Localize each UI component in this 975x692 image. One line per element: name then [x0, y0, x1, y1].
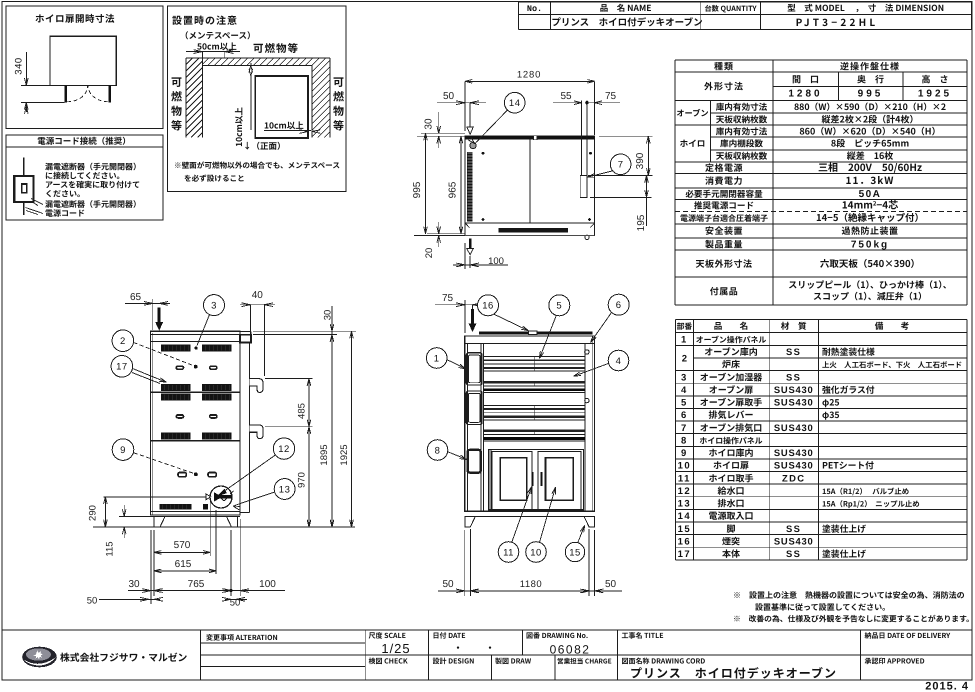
svg-text:13: 13: [678, 499, 692, 510]
svg-text:1280: 1280: [517, 70, 541, 81]
svg-text:1180: 1180: [520, 579, 542, 590]
svg-text:強化ガラス付: 強化ガラス付: [822, 383, 875, 396]
svg-text:排気レバー: 排気レバー: [708, 408, 753, 421]
svg-text:340: 340: [14, 57, 25, 74]
svg-text:1/25: 1/25: [381, 641, 410, 656]
svg-text:7: 7: [681, 423, 688, 434]
svg-text:50: 50: [605, 579, 617, 590]
svg-text:55: 55: [560, 91, 572, 102]
svg-text:庫内有効寸法: 庫内有効寸法: [716, 125, 768, 137]
svg-text:75: 75: [442, 293, 454, 304]
svg-text:15A（Rp1/2） ニップル止め: 15A（Rp1/2） ニップル止め: [822, 499, 920, 510]
svg-text:6: 6: [616, 300, 622, 311]
svg-text:15A（R1/2） バルブ止め: 15A（R1/2） バルブ止め: [822, 486, 909, 497]
svg-text:115: 115: [105, 541, 116, 556]
svg-text:1925: 1925: [918, 89, 952, 100]
svg-text:可燃物等: 可燃物等: [253, 41, 299, 56]
svg-text:1895: 1895: [319, 444, 330, 465]
svg-text:ホイロ庫内: ホイロ庫内: [708, 446, 753, 459]
svg-text:50: 50: [443, 91, 455, 102]
svg-text:65: 65: [130, 292, 142, 303]
svg-text:設置時の注意: 設置時の注意: [172, 12, 238, 27]
svg-text:オーブン加湿器: オーブン加湿器: [700, 370, 762, 383]
svg-text:電源コード接続（推奨）: 電源コード接続（推奨）: [37, 135, 131, 147]
svg-text:50cm以上: 50cm以上: [197, 41, 237, 53]
svg-text:SUS430: SUS430: [774, 422, 814, 433]
svg-text:1: 1: [681, 335, 688, 346]
svg-text:材 質: 材 質: [781, 320, 807, 332]
svg-text:SS: SS: [786, 371, 801, 382]
svg-text:10: 10: [530, 547, 542, 558]
svg-text:ホイロ扉開時寸法: ホイロ扉開時寸法: [35, 11, 115, 25]
svg-text:庫内有効寸法: 庫内有効寸法: [716, 101, 768, 113]
svg-text:100: 100: [488, 256, 504, 267]
svg-text:等: 等: [333, 118, 344, 134]
svg-text:1925: 1925: [339, 444, 350, 465]
svg-text:承認印 APPROVED: 承認印 APPROVED: [865, 657, 925, 667]
svg-text:750kg: 750kg: [851, 239, 889, 250]
svg-text:5: 5: [556, 301, 562, 312]
svg-text:1: 1: [434, 353, 440, 364]
svg-text:プリンス ホイロ付デッキオーブン: プリンス ホイロ付デッキオーブン: [551, 15, 702, 29]
svg-text:9: 9: [120, 445, 126, 456]
svg-text:・: ・: [453, 641, 462, 654]
svg-text:11．3kW: 11．3kW: [846, 172, 895, 187]
svg-text:3: 3: [211, 301, 217, 312]
svg-text:必要手元開閉器容量: 必要手元開閉器容量: [685, 188, 763, 200]
svg-text:変更事項 ALTERATION: 変更事項 ALTERATION: [206, 633, 278, 643]
svg-text:給水口: 給水口: [717, 484, 744, 497]
svg-text:※ 設置上の注意 熱機器の設置については安全の為、消防法の: ※ 設置上の注意 熱機器の設置については安全の為、消防法の: [733, 590, 965, 601]
svg-text:天板収納枚数: 天板収納枚数: [716, 113, 768, 125]
svg-text:11: 11: [678, 473, 691, 484]
svg-text:検図 CHECK: 検図 CHECK: [369, 657, 408, 667]
svg-text:日付 DATE: 日付 DATE: [433, 631, 466, 641]
svg-text:1280: 1280: [788, 89, 822, 100]
svg-text:ホイロ操作パネル: ホイロ操作パネル: [699, 435, 762, 446]
svg-text:工事名 TITLE: 工事名 TITLE: [622, 631, 664, 641]
svg-text:庫内棚段数: 庫内棚段数: [720, 138, 763, 150]
svg-text:を必ず設けること: を必ず設けること: [184, 173, 245, 184]
svg-text:オーブン扉: オーブン扉: [709, 383, 753, 396]
svg-text:PJT3−22HL: PJT3−22HL: [796, 14, 879, 29]
svg-text:※壁面が可燃物以外の場合でも、メンテスペース: ※壁面が可燃物以外の場合でも、メンテスペース: [174, 160, 340, 171]
svg-text:・: ・: [485, 641, 494, 654]
svg-text:995: 995: [412, 181, 423, 198]
svg-text:↓（正面）: ↓（正面）: [243, 140, 286, 152]
svg-text:設置基準に従って設置してください。: 設置基準に従って設置してください。: [755, 602, 890, 613]
svg-text:オーブン操作パネル: オーブン操作パネル: [696, 335, 767, 346]
svg-text:970: 970: [297, 472, 308, 488]
svg-text:7: 7: [618, 160, 624, 171]
svg-text:SS: SS: [786, 548, 801, 559]
svg-text:SS: SS: [786, 523, 801, 534]
svg-text:20: 20: [424, 248, 435, 259]
svg-text:天板外形寸法: 天板外形寸法: [695, 257, 752, 270]
svg-text:PETシート付: PETシート付: [822, 459, 874, 472]
svg-text:50: 50: [230, 598, 241, 609]
svg-text:390: 390: [635, 152, 646, 169]
svg-text:製品重量: 製品重量: [705, 237, 743, 250]
svg-text:SUS430: SUS430: [774, 397, 814, 408]
svg-text:SUS430: SUS430: [774, 460, 814, 471]
svg-text:SUS430: SUS430: [774, 384, 814, 395]
svg-text:615: 615: [175, 559, 192, 570]
svg-text:品 名: 品 名: [714, 320, 748, 332]
svg-text:オーブン庫内: オーブン庫内: [704, 345, 757, 358]
svg-text:ホイロ取手: ホイロ取手: [708, 471, 753, 484]
svg-text:定格電源: 定格電源: [705, 161, 743, 174]
svg-text:50: 50: [442, 579, 454, 590]
svg-text:40: 40: [252, 290, 264, 301]
svg-text:2015. 4: 2015. 4: [925, 681, 969, 692]
svg-text:9: 9: [681, 448, 688, 459]
svg-text:13: 13: [279, 484, 291, 495]
svg-text:部番: 部番: [677, 321, 693, 332]
svg-text:880（W）×590（D）×210（H）×2: 880（W）×590（D）×210（H）×2: [794, 100, 946, 113]
svg-text:外形寸法: 外形寸法: [704, 80, 744, 93]
svg-text:965: 965: [448, 181, 459, 198]
svg-text:設計 DESIGN: 設計 DESIGN: [433, 657, 475, 667]
svg-text:ZDC: ZDC: [782, 472, 805, 483]
svg-text:6: 6: [681, 410, 688, 421]
svg-text:290: 290: [88, 505, 99, 521]
svg-text:ホイロ: ホイロ: [680, 138, 706, 150]
svg-text:奥 行: 奥 行: [857, 72, 884, 85]
svg-text:株式会社フジサワ・マルゼン: 株式会社フジサワ・マルゼン: [60, 650, 188, 664]
svg-text:SUS430: SUS430: [774, 535, 814, 546]
svg-text:φ25: φ25: [822, 396, 840, 409]
svg-text:炉床: 炉床: [722, 358, 740, 371]
svg-text:ください。: ください。: [45, 189, 85, 200]
svg-text:100: 100: [259, 579, 276, 590]
svg-text:電源コード: 電源コード: [45, 208, 85, 219]
svg-text:備 考: 備 考: [875, 320, 910, 332]
svg-text:17: 17: [116, 362, 128, 373]
svg-text:間 口: 間 口: [792, 72, 819, 85]
svg-text:860（W）×620（D）×540（H）: 860（W）×620（D）×540（H）: [799, 124, 940, 137]
svg-text:16: 16: [482, 301, 494, 312]
svg-text:六取天板（540×390）: 六取天板（540×390）: [820, 256, 920, 270]
svg-text:煙突: 煙突: [722, 534, 740, 547]
svg-text:14: 14: [509, 98, 521, 109]
svg-text:種類: 種類: [714, 59, 734, 72]
svg-text:06082: 06082: [550, 643, 591, 657]
svg-text:10: 10: [678, 461, 692, 472]
svg-text:11: 11: [503, 547, 514, 558]
svg-text:消費電力: 消費電力: [705, 174, 743, 187]
svg-text:50: 50: [87, 596, 98, 607]
svg-text:製図 DRAW: 製図 DRAW: [495, 657, 532, 667]
svg-text:4: 4: [616, 356, 622, 367]
svg-text:プリンス ホイロ付デッキオーブン: プリンス ホイロ付デッキオーブン: [630, 665, 837, 682]
svg-text:SUS430: SUS430: [774, 447, 814, 458]
svg-text:995: 995: [858, 89, 884, 100]
svg-text:8: 8: [681, 435, 688, 446]
svg-text:4: 4: [681, 385, 688, 396]
svg-text:耐熱塗装仕様: 耐熱塗装仕様: [822, 345, 875, 358]
svg-text:品 名 NAME: 品 名 NAME: [600, 2, 652, 14]
svg-text:電源端子台適合圧着端子: 電源端子台適合圧着端子: [680, 213, 768, 224]
svg-text:2: 2: [682, 353, 687, 364]
svg-text:3: 3: [681, 372, 688, 383]
svg-text:30: 30: [424, 118, 435, 130]
svg-text:17: 17: [678, 549, 692, 560]
svg-text:納品日 DATE OF DELIVERY: 納品日 DATE OF DELIVERY: [865, 631, 952, 641]
svg-text:5: 5: [681, 398, 688, 409]
svg-text:脚: 脚: [726, 522, 735, 535]
svg-text:等: 等: [171, 118, 182, 134]
svg-text:ホイロ扉: ホイロ扉: [713, 459, 749, 472]
svg-text:φ35: φ35: [822, 408, 840, 421]
svg-text:2: 2: [120, 336, 126, 347]
svg-text:オーブン排気口: オーブン排気口: [700, 421, 762, 434]
svg-text:電源取入口: 電源取入口: [708, 509, 753, 522]
svg-text:付属品: 付属品: [710, 284, 739, 297]
svg-text:上火 人工石ボード、下火 人工石ボード: 上火 人工石ボード、下火 人工石ボード: [822, 360, 962, 371]
svg-text:SS: SS: [786, 346, 801, 357]
svg-text:14: 14: [678, 511, 692, 522]
svg-text:16: 16: [678, 536, 692, 547]
svg-text:15: 15: [678, 524, 692, 535]
svg-text:型 式 MODEL ， 寸 法 DIMENSION: 型 式 MODEL ， 寸 法 DIMENSION: [787, 2, 944, 14]
svg-text:75: 75: [605, 91, 617, 102]
svg-text:塗装仕上げ: 塗装仕上げ: [822, 547, 866, 560]
svg-text:図番 DRAWING No.: 図番 DRAWING No.: [526, 631, 588, 641]
svg-text:安全装置: 安全装置: [705, 224, 743, 237]
svg-text:高 さ: 高 さ: [921, 72, 948, 85]
svg-text:台数 QUANTITY: 台数 QUANTITY: [704, 4, 757, 14]
svg-text:塗装仕上げ: 塗装仕上げ: [822, 522, 866, 535]
svg-text:30: 30: [128, 579, 140, 590]
svg-text:オーブン扉取手: オーブン扉取手: [700, 396, 762, 409]
svg-text:195: 195: [636, 214, 647, 231]
svg-text:オーブン: オーブン: [676, 107, 708, 119]
svg-text:12: 12: [678, 486, 692, 497]
svg-text:485: 485: [297, 403, 308, 419]
svg-text:尺度 SCALE: 尺度 SCALE: [369, 631, 406, 641]
svg-text:推奨電源コード: 推奨電源コード: [694, 200, 754, 212]
svg-text:営業担当 CHARGE: 営業担当 CHARGE: [557, 656, 612, 666]
svg-text:8段 ピッチ65mm: 8段 ピッチ65mm: [831, 137, 910, 150]
svg-text:12: 12: [278, 444, 290, 455]
svg-text:10cm以上: 10cm以上: [264, 120, 304, 132]
svg-text:765: 765: [188, 579, 205, 590]
svg-text:14−5（絶縁キャップ付）: 14−5（絶縁キャップ付）: [816, 210, 924, 224]
svg-text:No.: No.: [527, 4, 542, 14]
svg-text:逆操作盤仕様: 逆操作盤仕様: [840, 59, 900, 72]
svg-text:8: 8: [435, 445, 441, 456]
svg-text:本体: 本体: [722, 547, 740, 560]
svg-text:※ 改善の為、仕様及び外観を予告なしに変更することがあります: ※ 改善の為、仕様及び外観を予告なしに変更することがあります。: [733, 614, 974, 625]
svg-text:過熱防止装置: 過熱防止装置: [841, 224, 898, 237]
svg-text:15: 15: [569, 547, 581, 558]
svg-text:排水口: 排水口: [717, 497, 744, 510]
svg-text:570: 570: [174, 540, 191, 551]
svg-text:スコップ（1）、減圧弁（1）: スコップ（1）、減圧弁（1）: [813, 290, 927, 303]
